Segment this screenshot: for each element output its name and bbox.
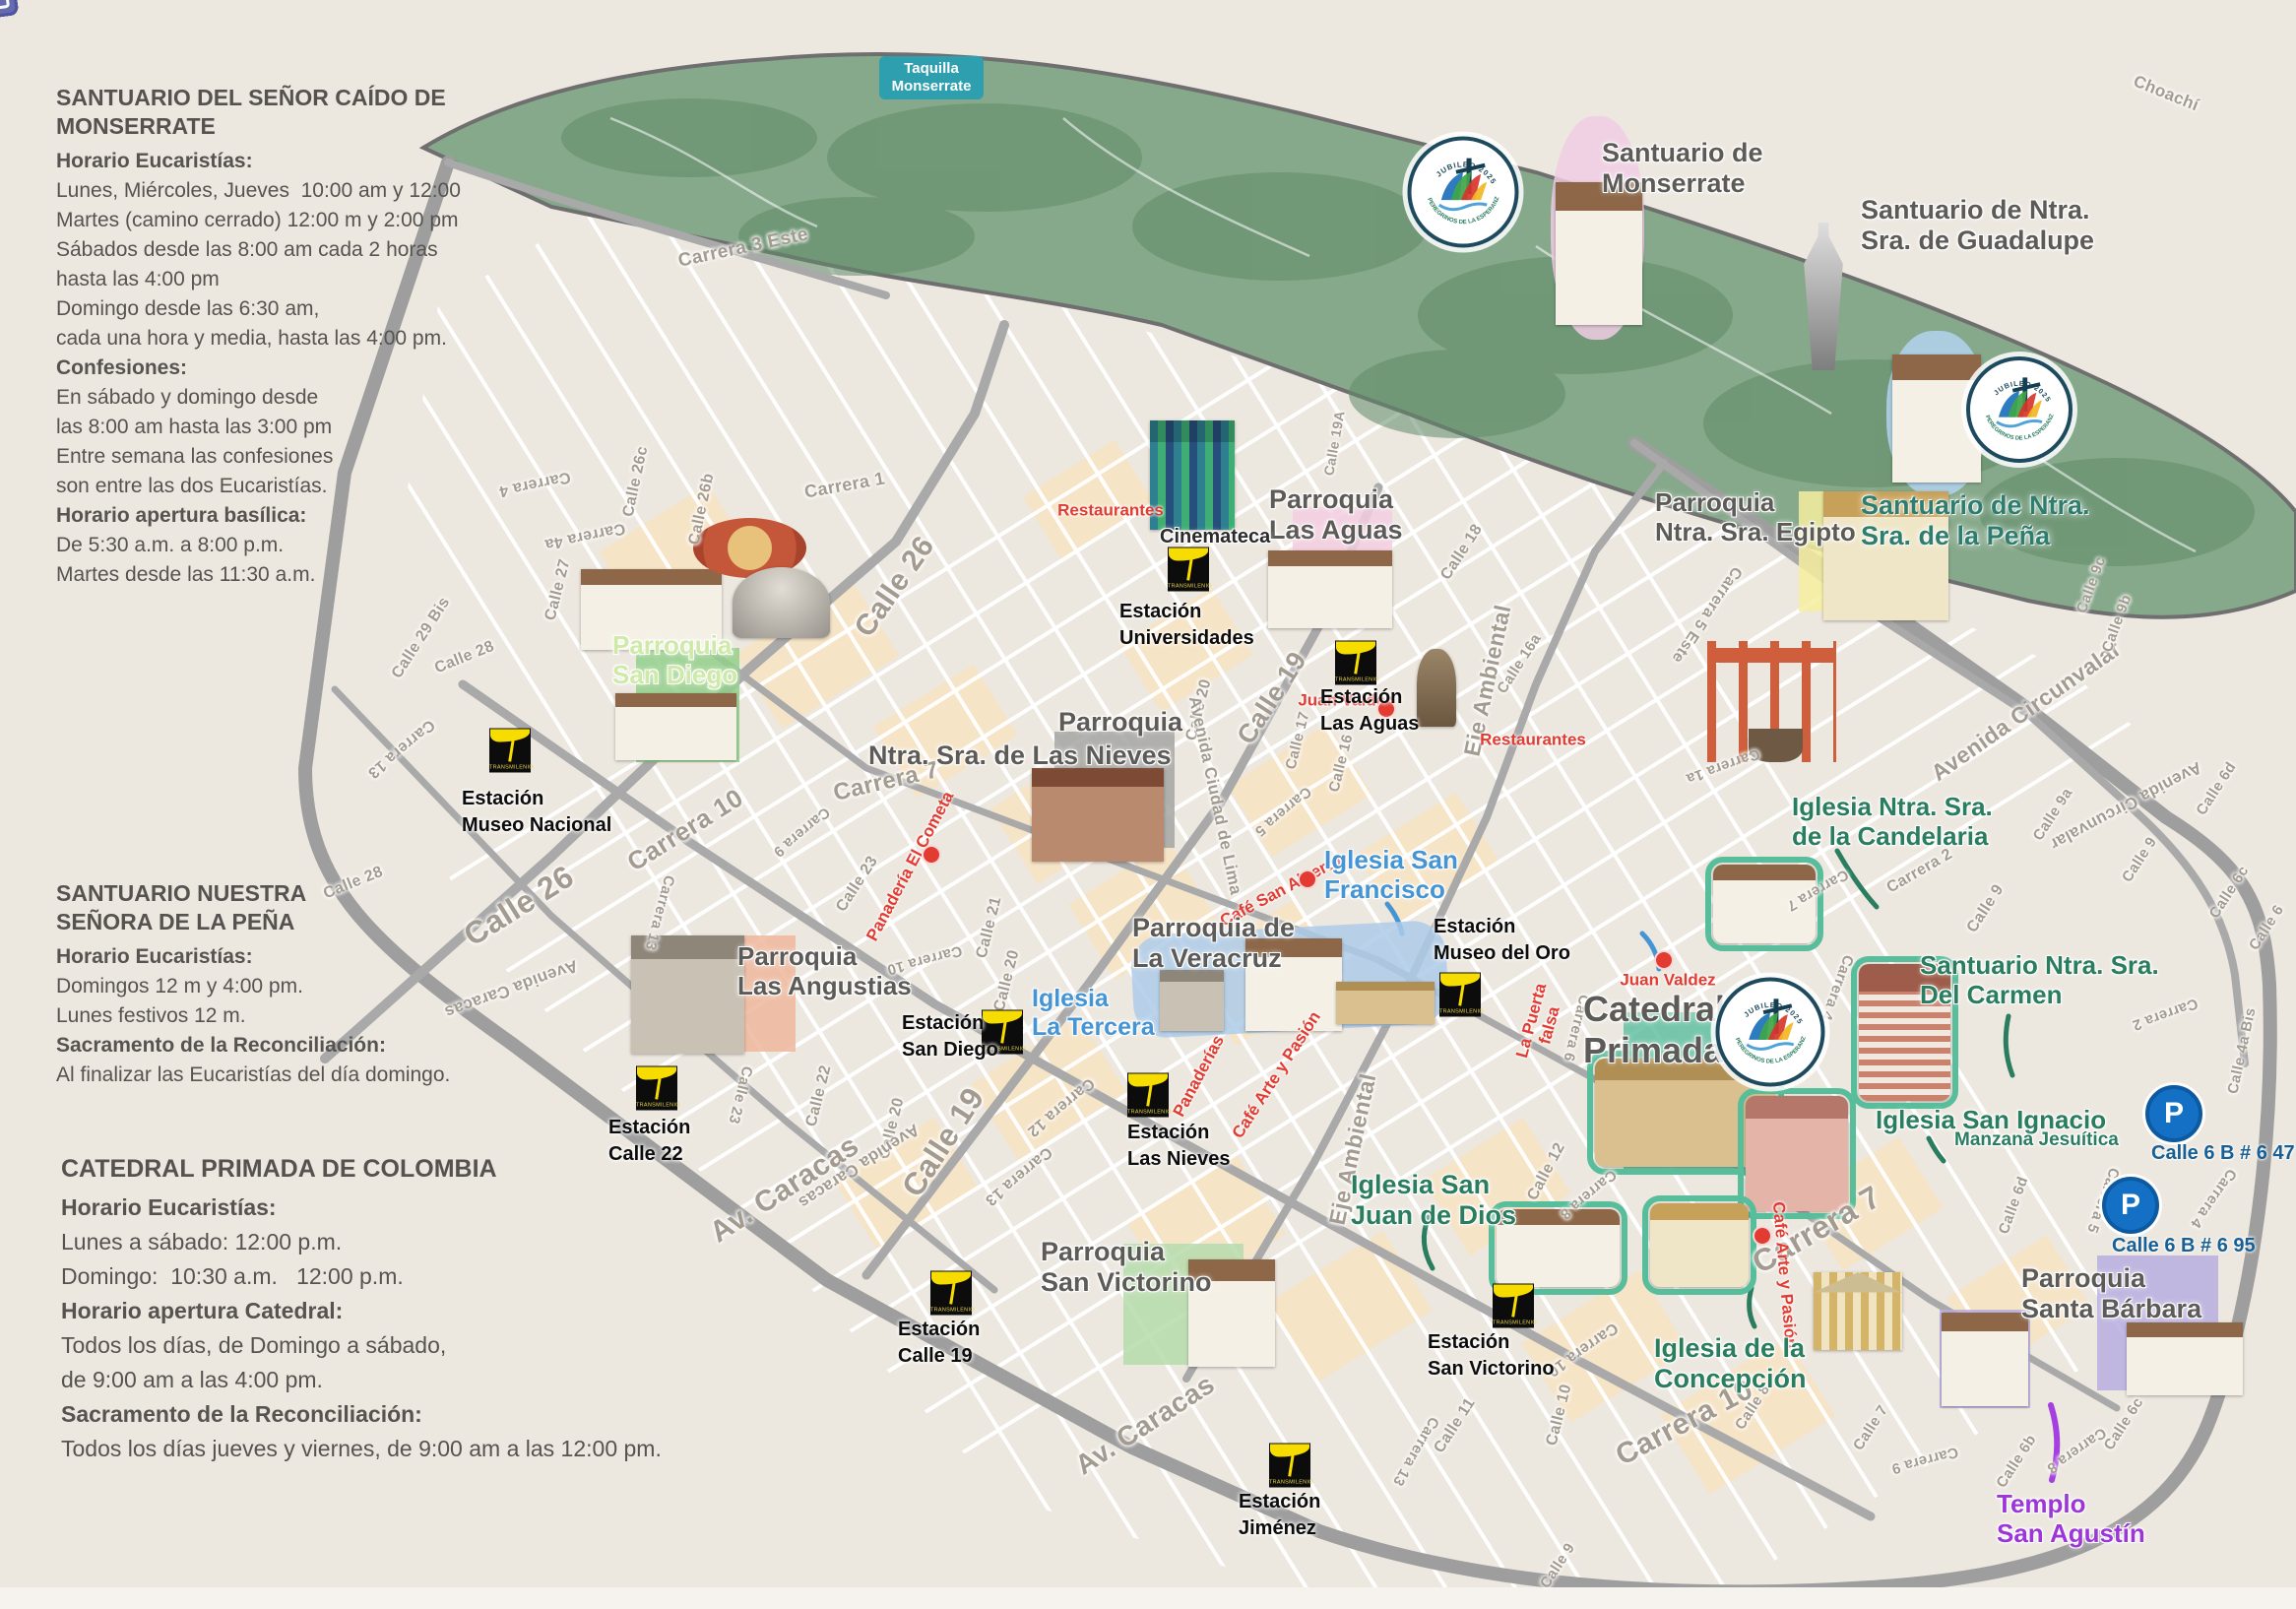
transmilenio-icon: TRANSMILENIO xyxy=(930,1271,972,1316)
transmilenio-icon: TRANSMILENIO xyxy=(1493,1284,1534,1328)
church-label: Santuario de Monserrate xyxy=(1602,138,1763,200)
station-label: Estación Calle 19 xyxy=(898,1317,980,1370)
poi-dot xyxy=(1298,869,1317,889)
jubilee-logo: JUBILEO 2025 PEREGRINOS DE LA ESPERANZA xyxy=(1408,137,1519,248)
station-label: Estación Las Aguas xyxy=(1320,684,1419,738)
building-photo xyxy=(1942,1313,2028,1406)
transmilenio-wordmark: TRANSMILENIO xyxy=(930,1308,972,1314)
panel-line: las 8:00 am hasta las 3:00 pm xyxy=(56,413,460,442)
parking-address: Calle 6 B # 6 47 xyxy=(2151,1142,2295,1165)
panel-line: De 5:30 a.m. a 8:00 p.m. xyxy=(56,531,460,560)
church-label: Iglesia de la Concepción xyxy=(1654,1333,1807,1395)
transmilenio-wordmark: TRANSMILENIO xyxy=(1335,677,1376,683)
station-label: Estación Las Nieves xyxy=(1127,1120,1231,1173)
parking-icon: P xyxy=(2102,1177,2159,1234)
parking-icon: P xyxy=(2145,1085,2202,1142)
panel-line: Al finalizar las Eucaristías del día dom… xyxy=(56,1061,568,1090)
panel-line: Lunes festivos 12 m. xyxy=(56,1001,568,1031)
church-label: Templo San Agustín xyxy=(1997,1489,2145,1548)
panel-line: Domingos 12 m y 4:00 pm. xyxy=(56,972,568,1001)
poi-dot xyxy=(1753,1226,1772,1246)
transmilenio-icon: TRANSMILENIO xyxy=(1269,1444,1310,1488)
building-photo xyxy=(1417,649,1456,727)
building-photo xyxy=(631,935,744,1054)
info-panel-monserrate: SANTUARIO DEL SEÑOR CAÍDO DE MONSERRATE … xyxy=(56,84,460,590)
transmilenio-icon: TRANSMILENIO xyxy=(1168,547,1209,592)
station-label: Estación Universidades xyxy=(1119,599,1254,652)
station-label: Estación Museo del Oro xyxy=(1434,914,1570,967)
panel-line: Domingo desde las 6:30 am, xyxy=(56,294,460,324)
transmilenio-wordmark: TRANSMILENIO xyxy=(636,1103,677,1109)
building-photo xyxy=(2127,1322,2243,1395)
panel-title: SANTUARIO DEL SEÑOR CAÍDO DE MONSERRATE xyxy=(56,84,450,141)
food-label: Restaurantes xyxy=(1480,732,1586,750)
church-label: Iglesia San Juan de Dios xyxy=(1351,1170,1516,1232)
panel-line: son entre las dos Eucaristías. xyxy=(56,472,460,501)
transmilenio-wordmark: TRANSMILENIO xyxy=(1493,1320,1534,1326)
building-photo xyxy=(1160,970,1224,1031)
station-label: Estación Jiménez xyxy=(1239,1489,1320,1542)
transmilenio-wordmark: TRANSMILENIO xyxy=(1269,1480,1310,1486)
church-label: Santuario de Ntra. Sra. de Guadalupe xyxy=(1861,195,2094,257)
transmilenio-icon: TRANSMILENIO xyxy=(489,729,531,773)
panel-line: Horario apertura Catedral: xyxy=(61,1294,750,1328)
church-label: Parroquia San Victorino xyxy=(1041,1237,1212,1299)
pilgrimage-map: {"":""} xyxy=(0,0,2296,1609)
food-label: Restaurantes xyxy=(1057,502,1164,521)
panel-title: CATEDRAL PRIMADA DE COLOMBIA xyxy=(61,1154,750,1185)
info-panel-catedral: CATEDRAL PRIMADA DE COLOMBIA Horario Euc… xyxy=(61,1154,750,1466)
poi-dot xyxy=(1654,950,1674,970)
panel-line: Martes (camino cerrado) 12:00 m y 2:00 p… xyxy=(56,206,460,235)
jubilee-logo: JUBILEO 2025 PEREGRINOS DE LA ESPERANZA xyxy=(1716,978,1825,1087)
panel-line: Lunes, Miércoles, Jueves 10:00 am y 12:0… xyxy=(56,176,460,206)
church-label: Manzana Jesuítica xyxy=(1954,1129,2119,1151)
panel-line: Horario Eucaristías: xyxy=(56,147,460,176)
transmilenio-wordmark: TRANSMILENIO xyxy=(489,765,531,771)
parking-letter: P xyxy=(2164,1097,2184,1130)
panel-line: Entre semana las confesiones xyxy=(56,442,460,472)
transmilenio-wordmark: TRANSMILENIO xyxy=(1439,1009,1481,1015)
church-label: Parroquia San Diego xyxy=(612,630,737,689)
transmilenio-icon: TRANSMILENIO xyxy=(1439,973,1481,1017)
parking-address: Calle 6 B # 6 95 xyxy=(2112,1235,2256,1257)
panel-line: Horario Eucaristías: xyxy=(56,942,568,972)
panel-line: Domingo: 10:30 a.m. 12:00 p.m. xyxy=(61,1259,750,1294)
building-photo xyxy=(1650,1203,1749,1287)
panel-line: Horario Eucaristías: xyxy=(61,1191,750,1225)
panel-line: Lunes a sábado: 12:00 p.m. xyxy=(61,1225,750,1259)
church-label: Iglesia La Tercera xyxy=(1032,985,1155,1042)
panel-line: Martes desde las 11:30 a.m. xyxy=(56,560,460,590)
church-label: Santuario de Ntra. Sra. de la Peña xyxy=(1861,490,2090,552)
jubilee-logo: JUBILEO 2025 PEREGRINOS DE LA ESPERANZA xyxy=(1966,356,2073,463)
building-photo xyxy=(1746,1096,1848,1211)
panel-title: SANTUARIO NUESTRA SEÑORA DE LA PEÑA xyxy=(56,879,371,936)
building-photo xyxy=(615,693,736,760)
station-label: Estación San Diego xyxy=(902,1010,998,1063)
church-label: Catedral Primada xyxy=(1583,989,1725,1071)
taquilla-box: Taquilla Monserrate xyxy=(879,56,984,99)
panel-line: Todos los días jueves y viernes, de 9:00… xyxy=(61,1432,750,1466)
church-label: Parroquia xyxy=(1058,707,1182,738)
church-label: Santuario Ntra. Sra. Del Carmen xyxy=(1920,950,2159,1009)
panel-line: Todos los días, de Domingo a sábado, xyxy=(61,1328,750,1363)
building-photo xyxy=(1707,641,1836,762)
church-label: Cinemateca xyxy=(1160,526,1270,548)
building-photo xyxy=(1336,982,1435,1024)
panel-line: Confesiones: xyxy=(56,354,460,383)
panel-line: En sábado y domingo desde xyxy=(56,383,460,413)
church-label: Parroquia de La Veracruz xyxy=(1132,913,1295,975)
transmilenio-wordmark: TRANSMILENIO xyxy=(1127,1110,1169,1116)
church-label: Iglesia San Francisco xyxy=(1324,845,1458,904)
panel-line: hasta las 4:00 pm xyxy=(56,265,460,294)
food-label: Juan Valdez xyxy=(1620,972,1715,991)
church-label: Iglesia Ntra. Sra. de la Candelaria xyxy=(1792,792,1993,851)
church-label: Parroquia Ntra. Sra. Egipto xyxy=(1655,487,1856,547)
station-label: Estación Museo Nacional xyxy=(462,786,611,839)
building-photo xyxy=(733,567,830,638)
panel-line: Sacramento de la Reconciliación: xyxy=(61,1397,750,1432)
church-label: Ntra. Sra. de Las Nieves xyxy=(868,740,1172,771)
poi-dot xyxy=(922,845,941,865)
transmilenio-icon: TRANSMILENIO xyxy=(1127,1073,1169,1118)
church-label: Parroquia Santa Bárbara xyxy=(2021,1263,2201,1325)
building-photo xyxy=(1556,182,1642,325)
transmilenio-icon: TRANSMILENIO xyxy=(636,1066,677,1111)
station-label: Estación San Victorino xyxy=(1428,1329,1555,1383)
info-panel-pena: SANTUARIO NUESTRA SEÑORA DE LA PEÑA Hora… xyxy=(56,879,568,1090)
parking-letter: P xyxy=(2121,1189,2140,1222)
bottom-band xyxy=(0,1587,2296,1609)
panel-line: Horario apertura basílica: xyxy=(56,501,460,531)
panel-line: Sacramento de la Reconciliación: xyxy=(56,1031,568,1061)
church-label: Parroquia Las Aguas xyxy=(1269,484,1403,547)
building-photo xyxy=(1814,1272,1902,1350)
transmilenio-icon: TRANSMILENIO xyxy=(1335,641,1376,685)
transmilenio-wordmark: TRANSMILENIO xyxy=(1168,584,1209,590)
panel-line: Sábados desde las 8:00 am cada 2 horas xyxy=(56,235,460,265)
building-photo xyxy=(1268,550,1392,628)
panel-line: cada una hora y media, hasta las 4:00 pm… xyxy=(56,324,460,354)
church-label: Parroquia Las Angustias xyxy=(737,941,912,1000)
panel-line: de 9:00 am a las 4:00 pm. xyxy=(61,1363,750,1397)
building-photo xyxy=(1032,768,1164,862)
